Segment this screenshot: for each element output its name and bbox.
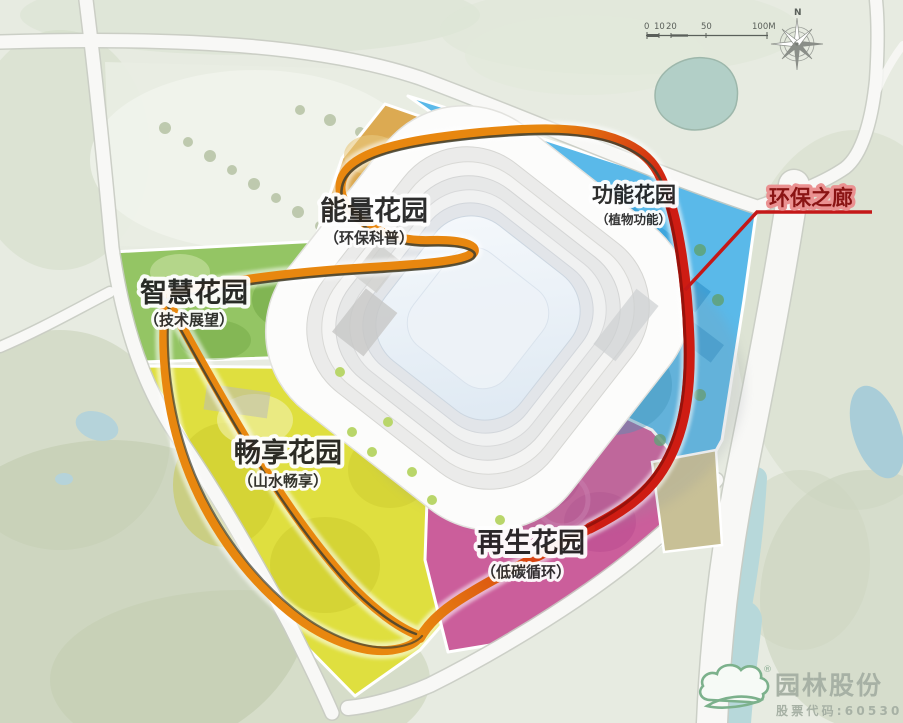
trademark-symbol: ® bbox=[763, 665, 772, 675]
label-energy-garden: 能量花园 bbox=[320, 195, 428, 227]
scale-tick-0: 0 bbox=[644, 22, 649, 32]
master-plan-map: 能量花园 （环保科普） 功能花园 （植物功能） 智慧花园 （技术展望） 畅享花园… bbox=[0, 0, 903, 723]
label-eco-corridor: 环保之廊 bbox=[769, 186, 853, 210]
scale-tick-50: 50 bbox=[701, 22, 712, 32]
site-plan-canvas: 能量花园 （环保科普） 功能花园 （植物功能） 智慧花园 （技术展望） 畅享花园… bbox=[0, 0, 903, 723]
label-regeneration-garden: 再生花园 bbox=[477, 528, 585, 559]
sublabel-energy-garden: （环保科普） bbox=[324, 229, 414, 247]
sublabel-regeneration-garden: （低碳循环） bbox=[481, 563, 571, 581]
scale-tick-10: 10 bbox=[654, 22, 665, 32]
sublabel-enjoy-garden: （山水畅享） bbox=[238, 472, 328, 490]
sublabel-wisdom-garden: （技术展望） bbox=[144, 311, 234, 329]
scale-tick-20: 20 bbox=[666, 22, 677, 32]
label-enjoy-garden: 畅享花园 bbox=[234, 437, 342, 469]
logo-company-name: 园林股份 bbox=[775, 671, 883, 700]
sublabel-function-garden: （植物功能） bbox=[596, 212, 671, 227]
label-wisdom-garden: 智慧花园 bbox=[140, 278, 248, 309]
scale-tick-100: 100M bbox=[752, 22, 776, 32]
logo-stock-code: 股票代码:605303 bbox=[776, 703, 903, 718]
compass-north-label: N bbox=[794, 8, 802, 18]
label-function-garden: 功能花园 bbox=[592, 183, 676, 207]
